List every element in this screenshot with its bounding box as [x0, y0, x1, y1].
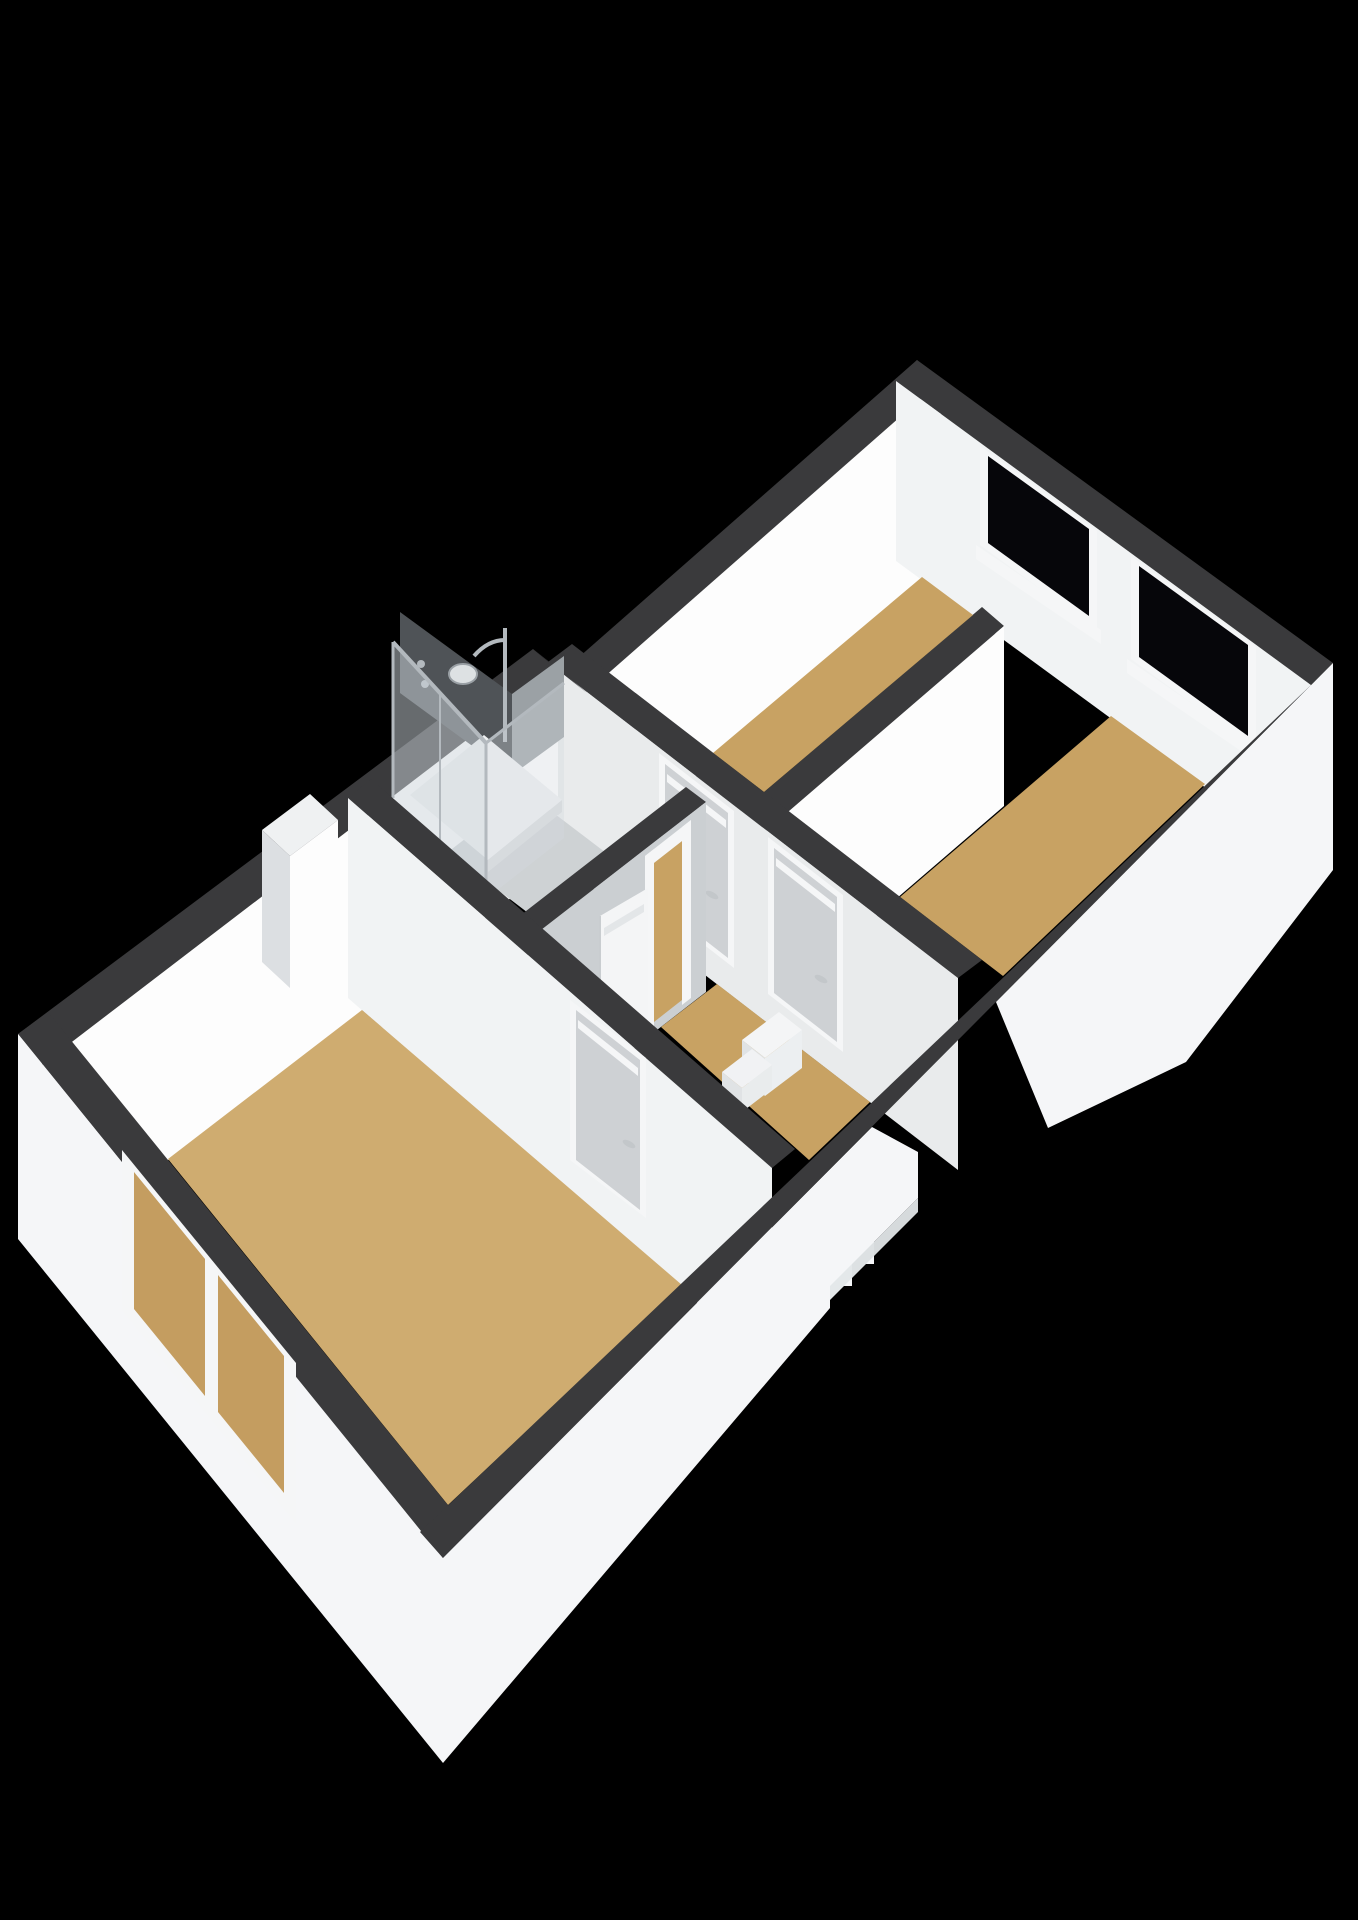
floorplan-canvas — [0, 0, 1358, 1920]
chimney-breast — [262, 794, 338, 988]
window-mullion — [205, 1259, 218, 1412]
shower-head — [449, 664, 477, 684]
floorplan-3d-render — [0, 0, 1358, 1920]
chimney-side — [262, 830, 290, 988]
doorway-jamb — [682, 820, 691, 1005]
